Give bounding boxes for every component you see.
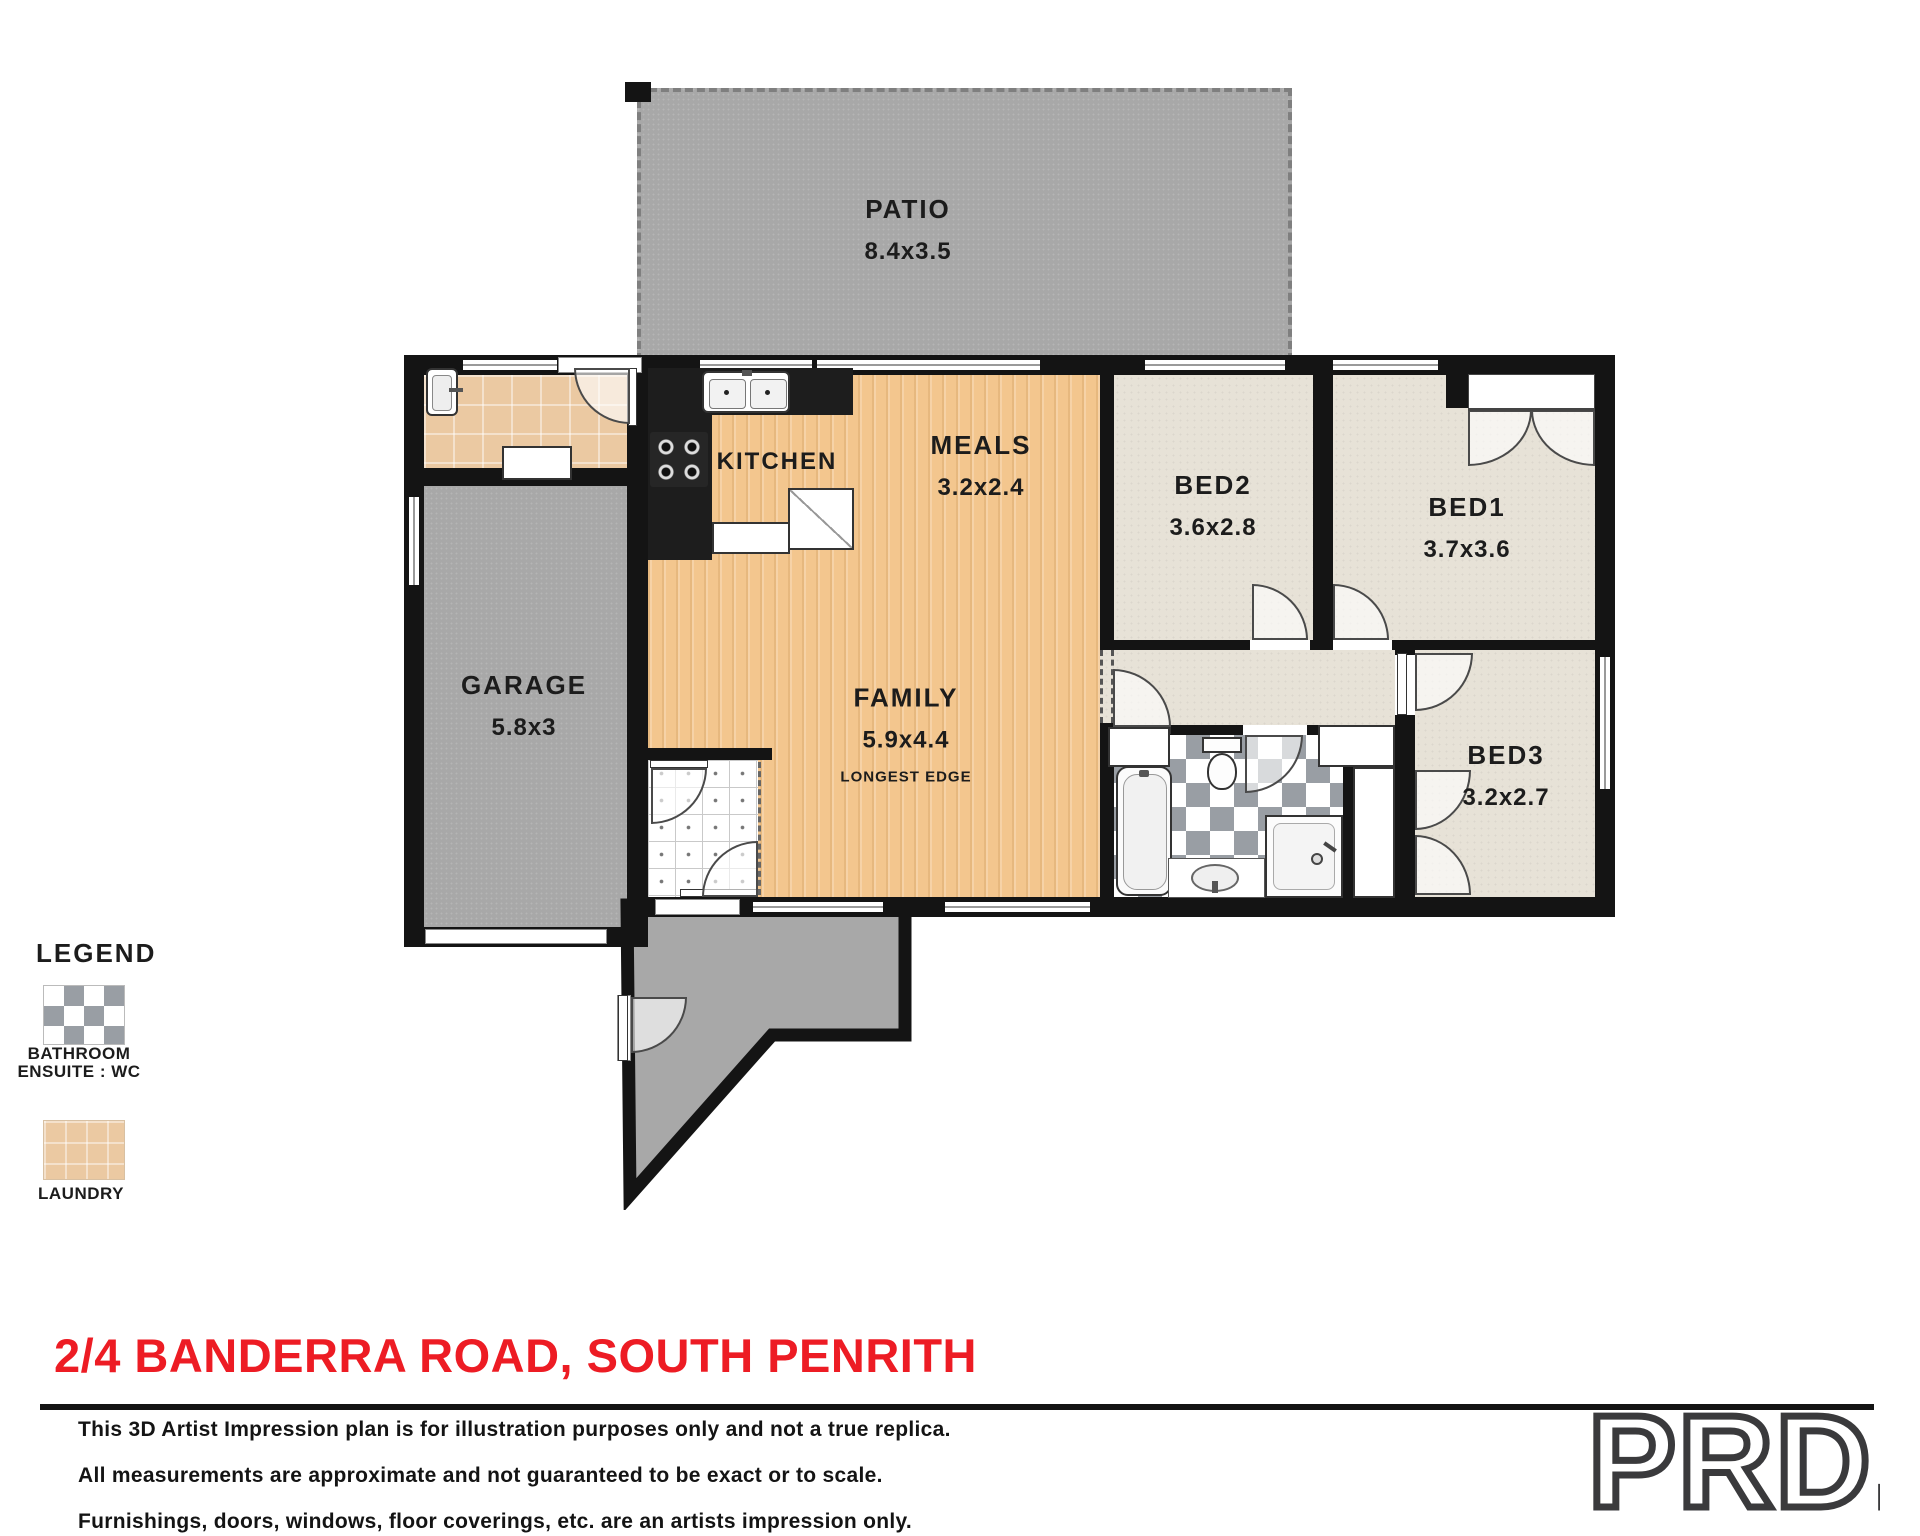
sink-drain [724,390,729,395]
open-doorway [1100,650,1114,723]
sink-drain [765,390,770,395]
legend-caption: ENSUITE : WC [17,1062,140,1082]
tub-basin [432,375,452,411]
wall [404,375,424,947]
wall [1395,715,1415,897]
cooktop [650,432,708,487]
wall [627,375,648,947]
window [753,899,883,915]
legend-caption: BATHROOM [28,1044,131,1064]
window [463,357,557,373]
floor-plan-page: PATIO 8.4x3.5 [0,0,1920,1536]
wall [1343,765,1353,898]
kitchen-sink [702,371,790,413]
disclaimer-line: All measurements are approximate and not… [78,1464,883,1488]
washing-machine [502,446,572,480]
wall [1595,375,1615,897]
room-dims: 3.2x2.7 [1462,784,1549,812]
prd-logo-text: PRD. [1588,1395,1880,1530]
vanity-tap [1212,881,1218,893]
open-edge [758,762,764,895]
shower [1265,815,1343,898]
wall [1446,374,1468,408]
room-label-kitchen: KITCHEN [717,448,838,476]
room-dims: 5.9x4.4 [840,727,971,755]
room-label-patio: PATIO 8.4x3.5 [864,194,951,266]
disclaimer-line: Furnishings, doors, windows, floor cover… [78,1510,912,1534]
window [1333,357,1438,373]
legend-title: LEGEND [36,938,156,969]
room-label-garage: GARAGE 5.8x3 [461,670,587,742]
room-label-family: FAMILY 5.9x4.4 LONGEST EDGE [840,683,971,786]
bathtub-basin [1123,774,1167,890]
fridge-space [788,488,854,550]
patio-area [637,88,1292,361]
room-name: MEALS [931,430,1032,461]
wardrobe-track [1468,408,1595,411]
room-dims: 3.6x2.8 [1169,514,1256,542]
wall [1100,375,1114,650]
room-name: KITCHEN [717,448,838,476]
prd-logo: PRD. [1580,1395,1880,1530]
bed1-wardrobe-recess [1468,374,1595,410]
checker-swatch [43,985,125,1045]
room-name: BED1 [1423,492,1510,523]
laundry-tile-swatch [43,1120,125,1180]
sink-tap [742,370,752,376]
room-name: GARAGE [461,670,587,701]
front-door-opening [655,899,740,915]
door-leaf [618,995,628,1061]
porch-area [610,890,920,1210]
wall [1100,640,1250,650]
garage-door [425,929,607,944]
room-dims: 3.2x2.4 [931,474,1032,502]
laundry-tub [426,368,458,416]
shower-base [1273,823,1335,890]
window [1597,657,1613,789]
disclaimer-line: This 3D Artist Impression plan is for il… [78,1418,951,1442]
bath-tap [1139,770,1149,777]
room-dims: 8.4x3.5 [864,238,951,266]
patio-post [625,82,651,102]
property-address: 2/4 BANDERRA ROAD, SOUTH PENRITH [54,1328,977,1383]
shower-drain [1311,853,1323,865]
room-name: FAMILY [840,683,971,714]
wall [648,748,772,760]
door-leaf [1397,653,1407,715]
room-label-bed1: BED1 3.7x3.6 [1423,492,1510,564]
dishwasher [712,522,790,554]
door-leaf [650,760,708,768]
room-label-bed3: BED3 3.2x2.7 [1462,740,1549,812]
vanity [1168,858,1265,898]
room-dims: 5.8x3 [461,714,587,742]
wall [1392,640,1615,650]
tap [449,388,463,392]
window [406,497,422,585]
cupboard [1108,727,1170,767]
window [945,899,1090,915]
room-name: BED3 [1462,740,1549,771]
wall [1310,640,1333,650]
room-label-meals: MEALS 3.2x2.4 [931,430,1032,502]
room-dims: 3.7x3.6 [1423,536,1510,564]
toilet-cistern [1202,737,1242,753]
bathtub [1116,766,1172,896]
room-name: PATIO [864,194,951,225]
room-name: BED2 [1169,470,1256,501]
legend-caption: LAUNDRY [38,1184,124,1204]
room-note: LONGEST EDGE [840,769,971,786]
room-label-bed2: BED2 3.6x2.8 [1169,470,1256,542]
linen-closet [1318,725,1395,767]
toilet-bowl [1207,753,1237,790]
wall [1313,375,1333,650]
porch-polygon [627,905,905,1195]
window [1145,357,1285,373]
bed3-wardrobe-cavity [1353,767,1395,898]
